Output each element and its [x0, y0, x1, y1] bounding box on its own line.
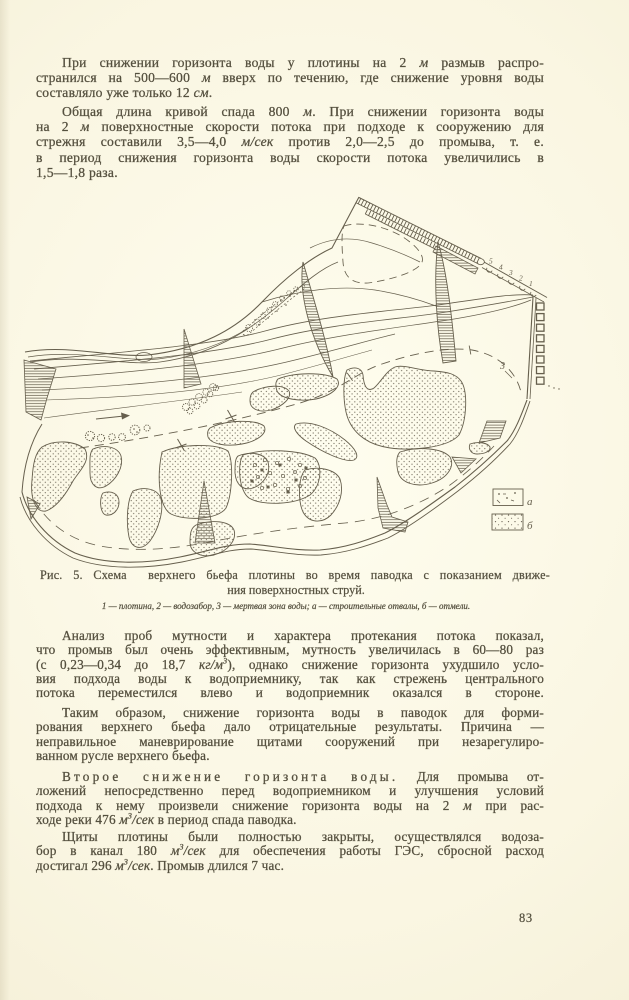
svg-text:4: 4	[499, 262, 503, 271]
svg-text:3: 3	[508, 268, 513, 277]
svg-text:б: б	[527, 520, 533, 532]
svg-text:1: 1	[529, 279, 533, 288]
svg-text:2: 2	[519, 274, 523, 283]
svg-text:а: а	[527, 496, 533, 508]
svg-text:5: 5	[489, 257, 493, 266]
